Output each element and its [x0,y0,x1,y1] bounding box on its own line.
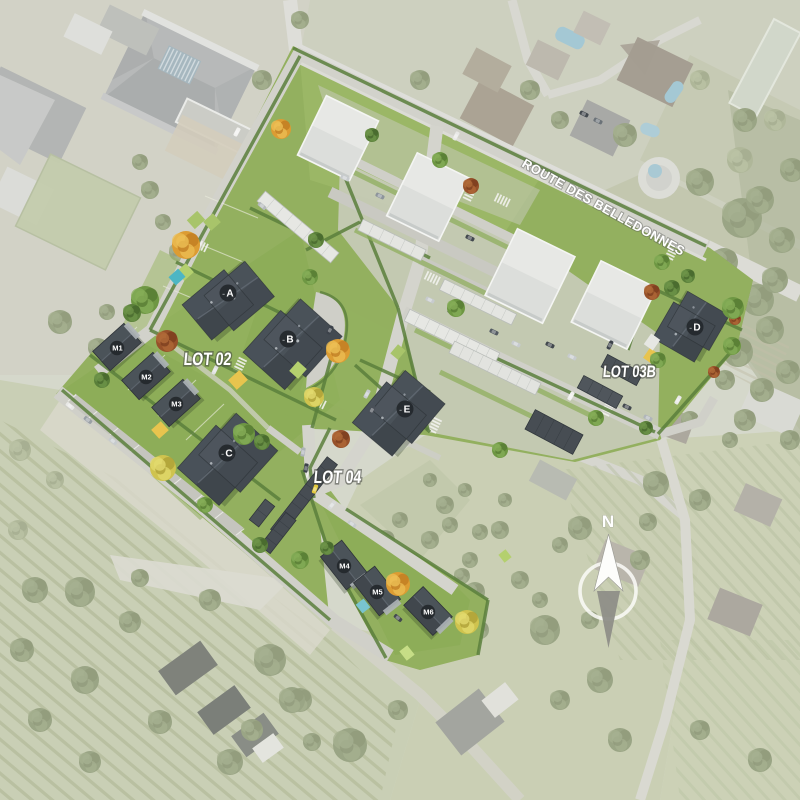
svg-text:A: A [226,289,233,300]
svg-text:LOT 02: LOT 02 [183,349,232,369]
svg-text:LOT 03B: LOT 03B [602,364,657,382]
svg-text:M2: M2 [141,373,151,382]
svg-text:M3: M3 [171,400,181,409]
svg-text:N: N [602,512,614,531]
svg-text:M6: M6 [423,608,433,617]
svg-text:M5: M5 [372,588,382,597]
svg-text:M4: M4 [339,562,350,571]
svg-text:C: C [225,449,232,460]
svg-text:E: E [404,405,411,416]
svg-text:LOT 04: LOT 04 [313,467,362,487]
svg-text:D: D [693,323,700,334]
svg-text:M1: M1 [112,344,122,353]
svg-text:B: B [286,335,293,346]
